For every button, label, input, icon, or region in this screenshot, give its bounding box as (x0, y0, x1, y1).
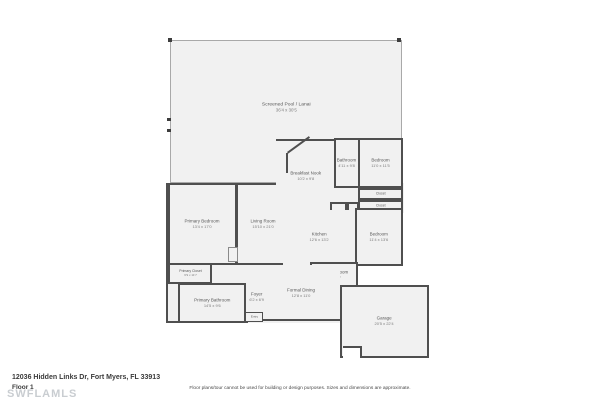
lanai-door-tick (167, 118, 171, 121)
disclaimer-text: Floor plans/tour cannot be used for buil… (156, 385, 444, 390)
door-marker (228, 247, 238, 262)
room-label: Garage20'5 x 22'4 (375, 316, 394, 327)
room-primary-bedroom: Primary Bedroom13'4 x 17'0 (168, 183, 237, 265)
room-label: Primary Bedroom13'4 x 17'0 (185, 218, 220, 229)
room-label: Breakfast Nook10'2 x 9'8 (291, 171, 322, 182)
wall-segment (236, 263, 254, 265)
wall-segment (286, 153, 288, 173)
lanai-post (397, 38, 401, 42)
room-label: Primary Bathroom14'5 x 9'6 (194, 297, 230, 308)
room-breakfast-nook: Breakfast Nook10'2 x 9'8 (276, 139, 336, 212)
room-label: Screened Pool / Lanai36'4 x 30'5 (262, 101, 311, 113)
lanai-post (168, 38, 172, 42)
wall-segment (166, 183, 168, 323)
room-label: Kitchen12'6 x 13'2 (309, 232, 328, 243)
room-closet-a: Closet (358, 188, 403, 200)
room-label: Bedroom11'0 x 11'5 (371, 157, 390, 168)
room-label: Bedroom11'4 x 13'6 (370, 231, 389, 242)
room-label: Foyer6'2 x 6'9 (250, 292, 265, 303)
lanai-door-tick (167, 129, 171, 132)
mls-watermark: SWFLAMLS (7, 388, 77, 400)
room-bathroom: Bathroom4'11 x 9'8 (334, 138, 360, 188)
address-text: 12036 Hidden Links Dr, Fort Myers, FL 33… (12, 374, 160, 381)
room-primary-bathroom: Primary Bathroom14'5 x 9'6 (178, 283, 246, 323)
room-label: Living Room15'10 x 21'0 (250, 218, 275, 229)
room-label: Primary Closet6'9 x 11'7 (179, 269, 201, 277)
floor-plan-page: Screened Pool / Lanai36'4 x 30'5 Primary… (0, 0, 600, 400)
room-kitchen: Kitchen12'6 x 13'2 (283, 210, 355, 265)
wall-segment (166, 321, 248, 323)
room-bedroom-2: Bedroom11'0 x 11'5 (358, 138, 403, 188)
room-label: Bathroom4'11 x 9'8 (337, 157, 357, 168)
room-label: Entry (250, 315, 257, 319)
room-label: Formal Dining12'8 x 11'0 (287, 287, 315, 298)
entry-step: Entry (245, 312, 263, 322)
room-primary-closet: Primary Closet6'9 x 11'7 (168, 263, 212, 284)
wall-segment (258, 319, 342, 321)
garage-door-notch (343, 346, 362, 358)
room-bedroom-3: Bedroom11'4 x 13'6 (355, 208, 403, 266)
room-label: Closet (376, 192, 386, 196)
